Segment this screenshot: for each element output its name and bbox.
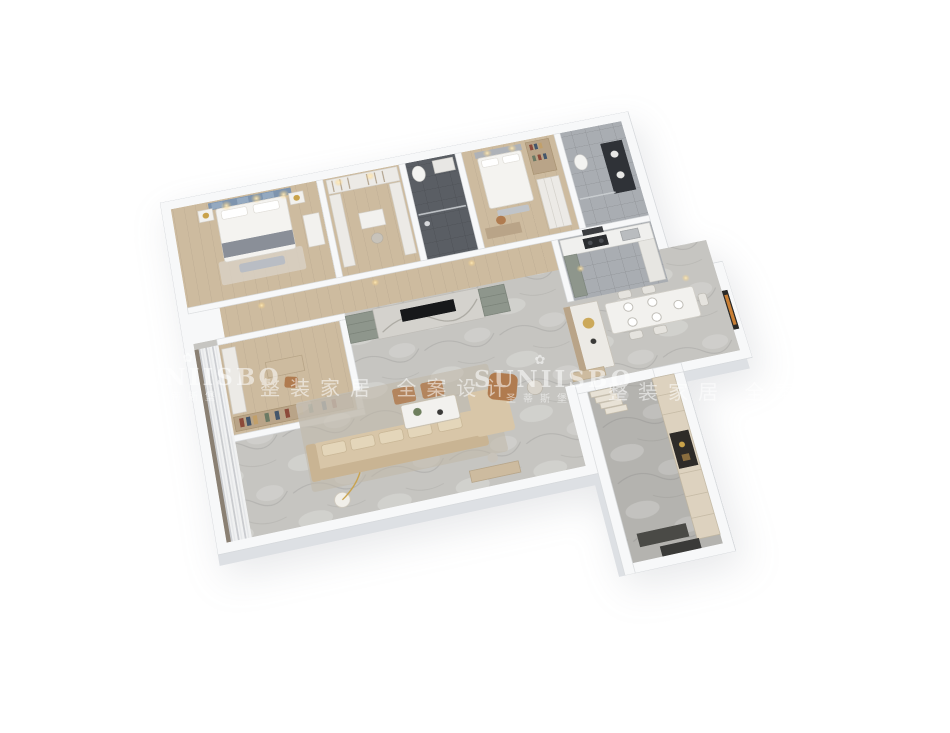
floorplan-svg [160, 102, 808, 661]
floorplan-render-canvas: ✿ SUNIISBO 圣蒂斯堡 整装家居 全案设计 ✿ SUNIISBO 圣蒂斯… [0, 0, 950, 733]
floorplan-3d-scene [160, 102, 808, 661]
study-chair [284, 376, 298, 388]
accent-armchair [487, 372, 518, 401]
